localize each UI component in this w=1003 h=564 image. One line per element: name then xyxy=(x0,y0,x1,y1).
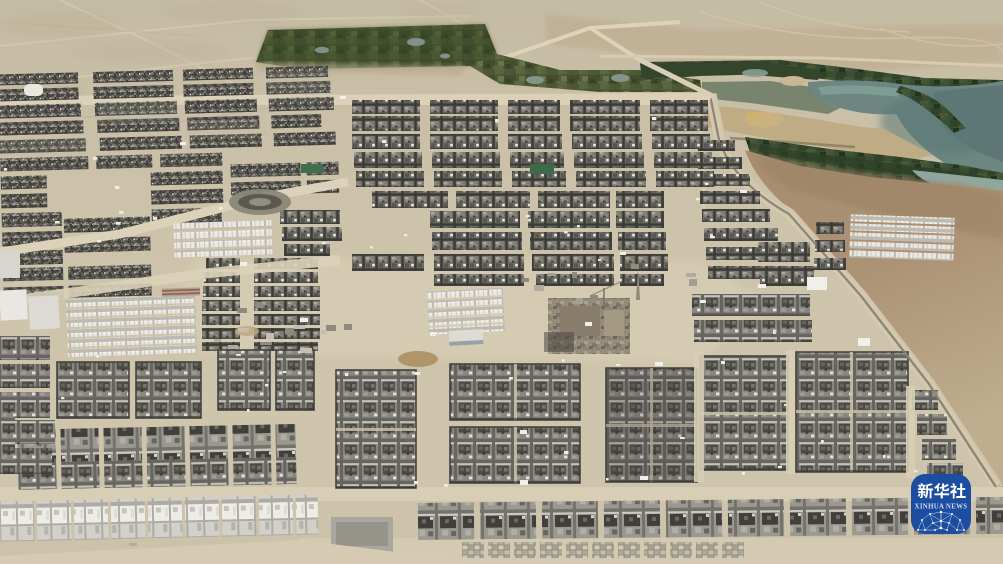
svg-text:XINHUA NEWS: XINHUA NEWS xyxy=(915,504,968,511)
